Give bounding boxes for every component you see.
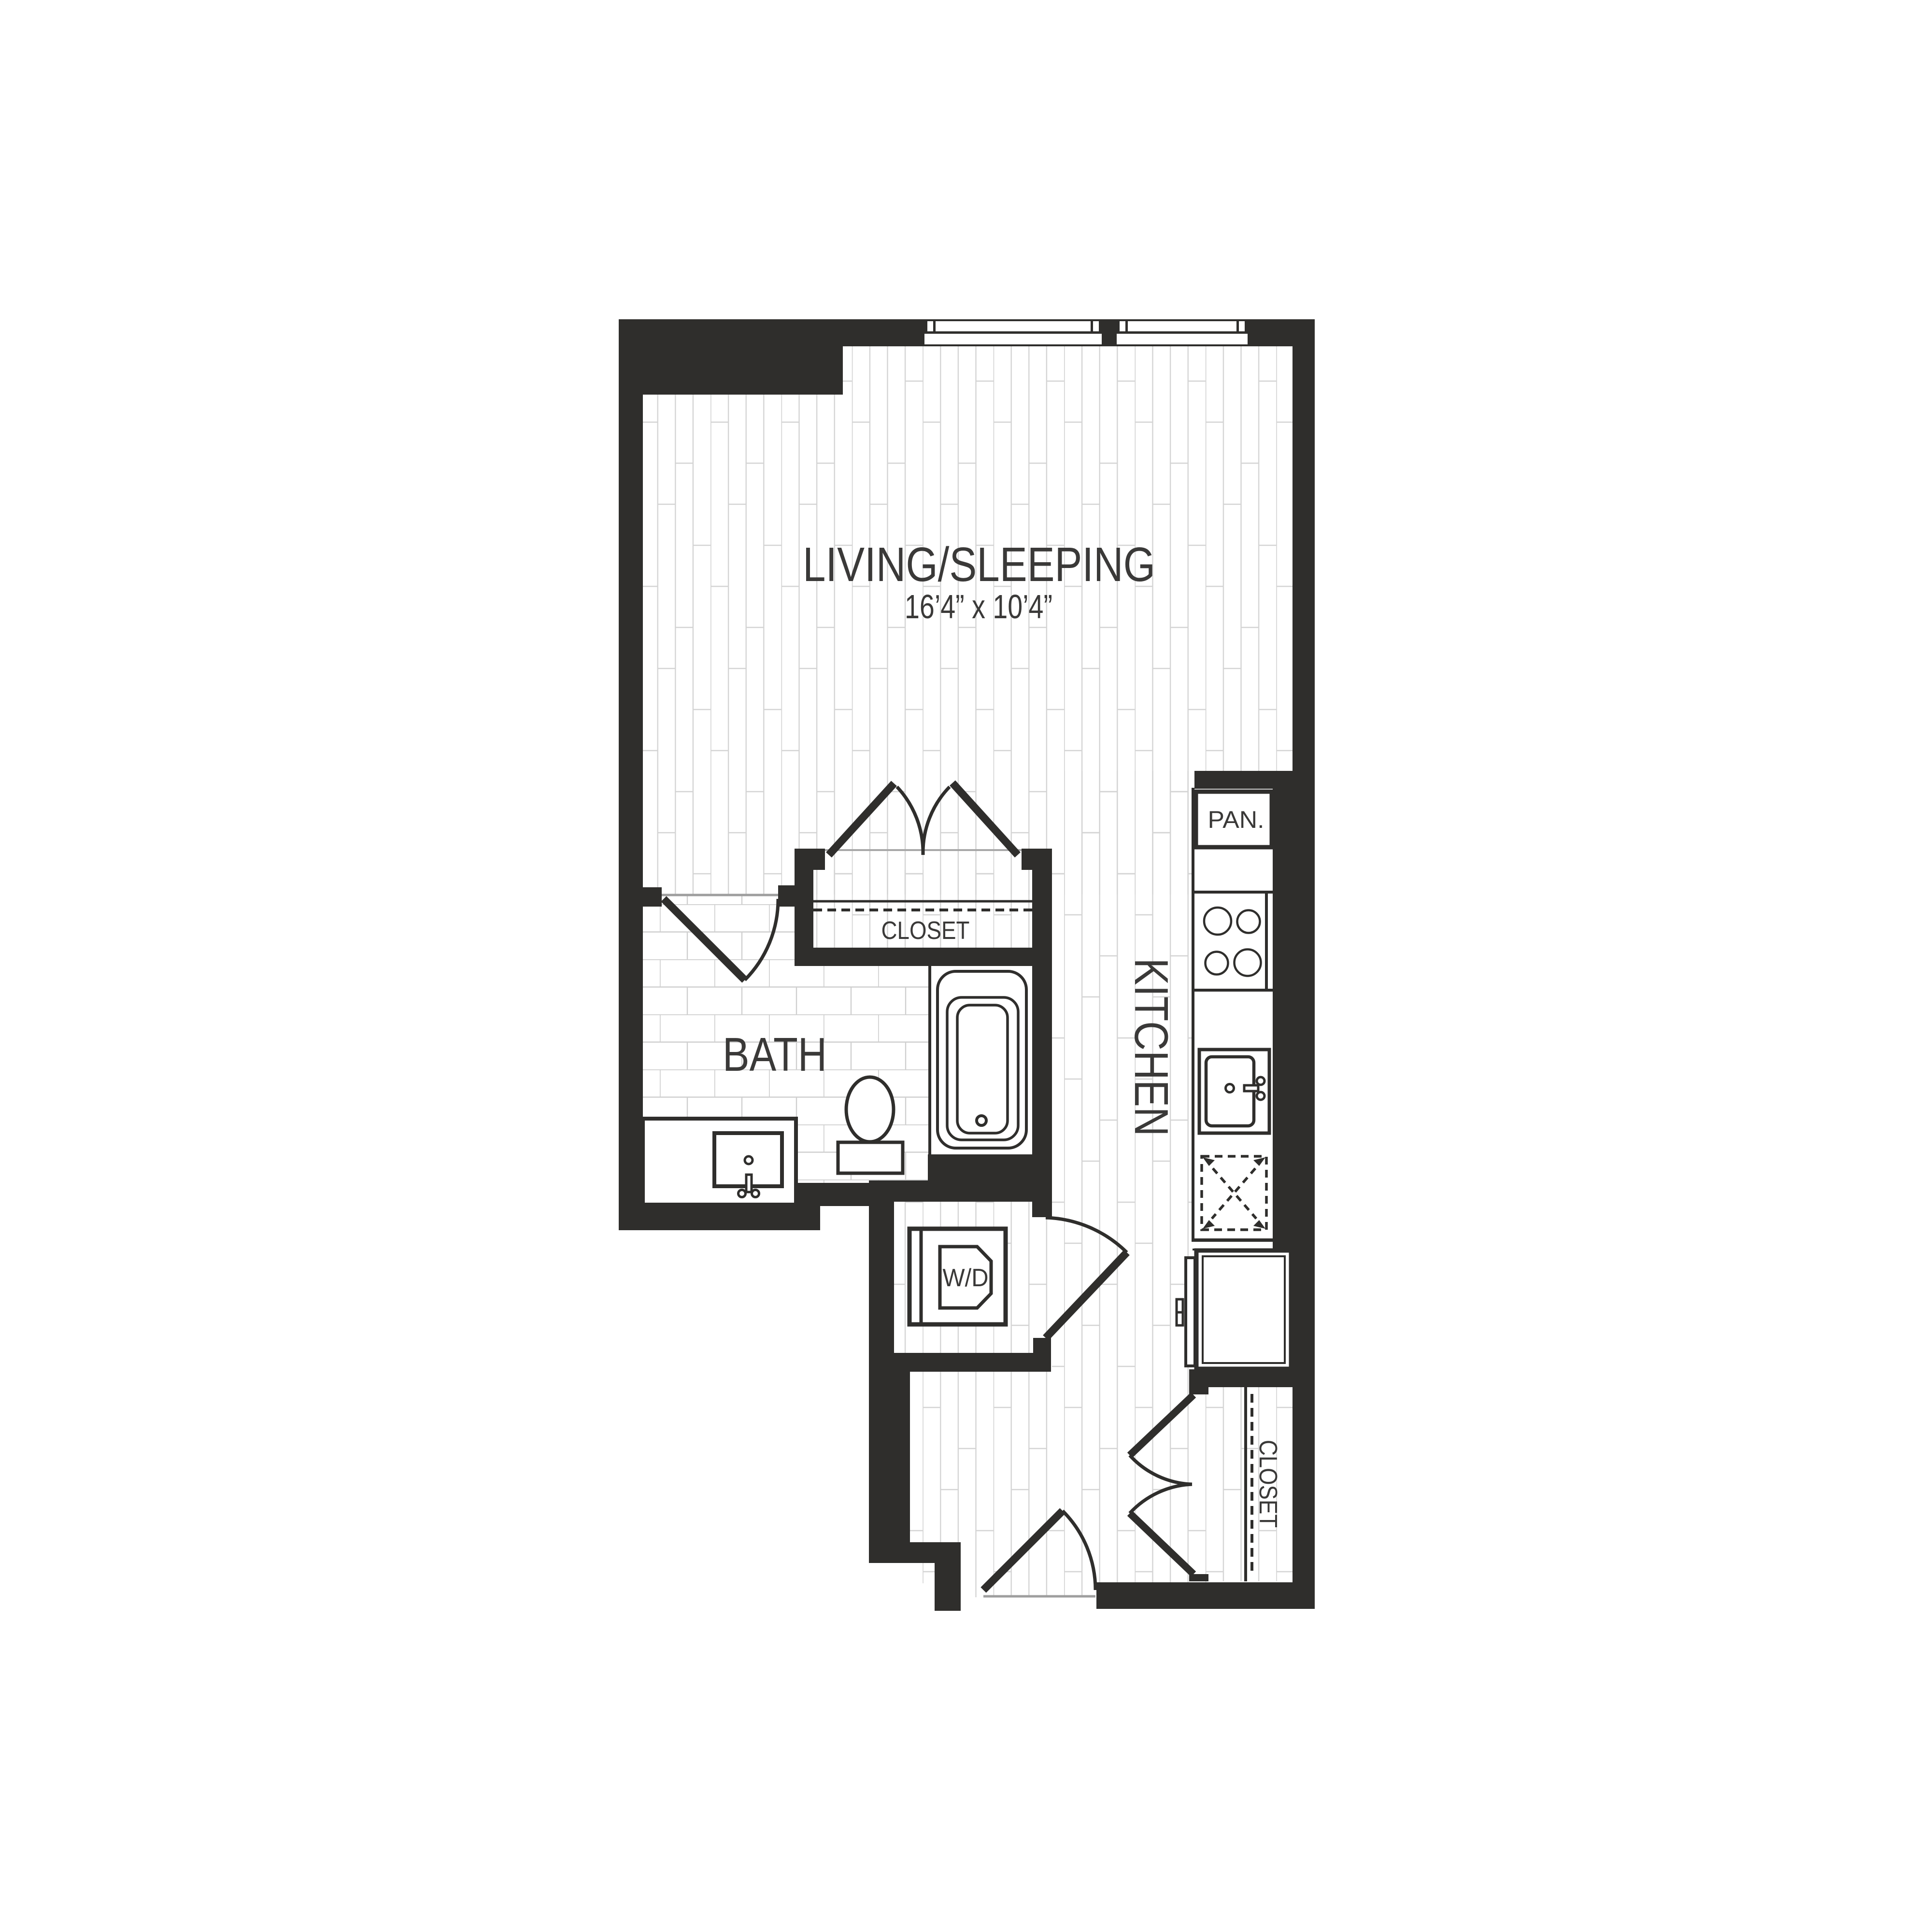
svg-text:CLOSET: CLOSET	[881, 917, 970, 945]
svg-text:PAN.: PAN.	[1208, 806, 1264, 833]
svg-text:16’4” x 10’4”: 16’4” x 10’4”	[905, 588, 1052, 625]
svg-text:LIVING/SLEEPING: LIVING/SLEEPING	[803, 538, 1155, 592]
svg-text:KITCHEN: KITCHEN	[1125, 958, 1178, 1136]
svg-text:W/D: W/D	[943, 1264, 989, 1292]
svg-text:CLOSET: CLOSET	[1254, 1440, 1282, 1528]
svg-text:BATH: BATH	[723, 1028, 827, 1081]
